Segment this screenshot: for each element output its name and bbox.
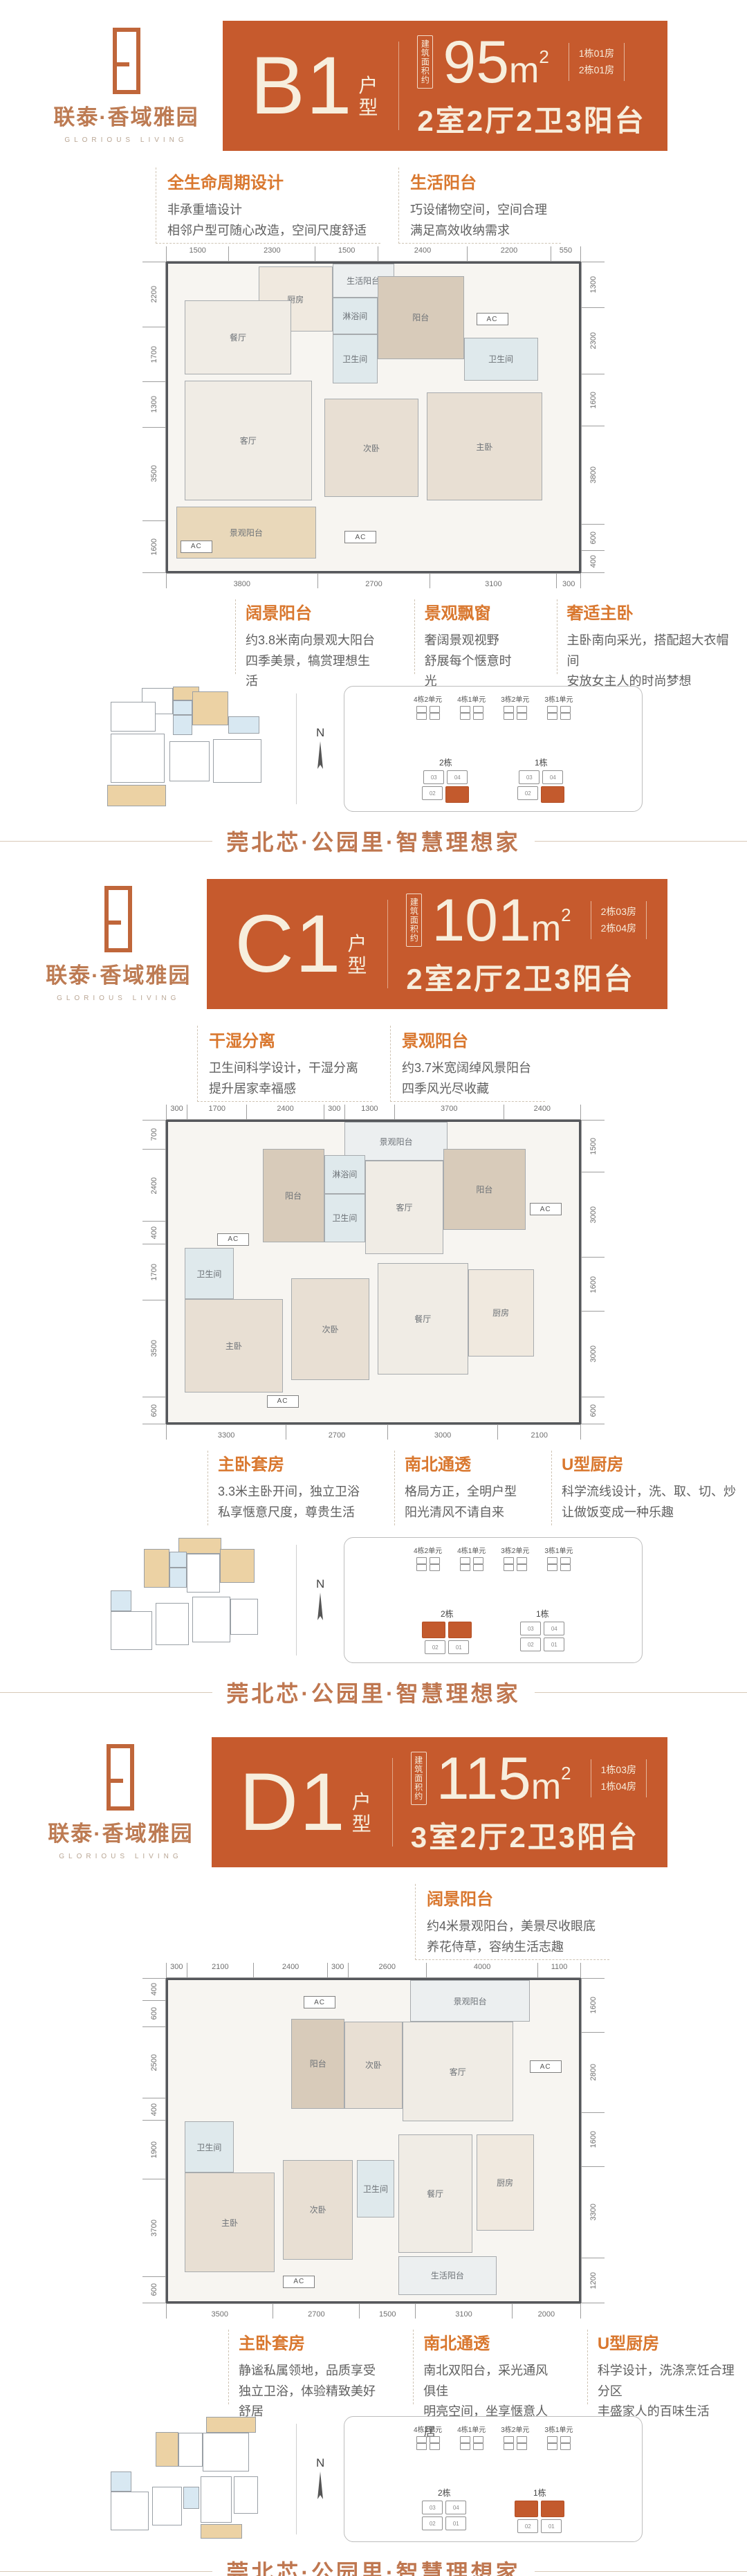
building-icon	[517, 1557, 527, 1564]
glyph-row	[547, 2443, 571, 2450]
layout-summary: 2室2厅2卫3阳台	[417, 98, 645, 140]
banner-divider	[392, 1758, 393, 1847]
annotation-title: 景观飘窗	[425, 599, 522, 624]
dimension-value: 2700	[329, 1431, 345, 1440]
brand-logo: 联泰·香域雅园 GLORIOUS LIVING	[38, 21, 214, 151]
room-卫生间: 卫生间	[464, 338, 538, 381]
building-icon	[504, 713, 514, 720]
building-icon	[504, 2436, 514, 2443]
building-icon	[416, 2443, 427, 2450]
mini-room	[220, 1549, 255, 1583]
building-icon	[430, 2436, 440, 2443]
feature-box: 景观阳台 约3.7米宽阔绰风景阳台 四季风光尽收藏	[390, 1026, 545, 1102]
ac-unit-badge: AC	[267, 1395, 299, 1408]
building-icon	[560, 1564, 571, 1571]
banner-divider	[387, 900, 388, 988]
room-客厅: 客厅	[403, 2022, 513, 2121]
dimension-value: 3100	[455, 2310, 472, 2319]
building-icon	[547, 2436, 557, 2443]
footer-line	[535, 841, 747, 842]
dimension-value: 1300	[150, 396, 158, 412]
room-label: 阳台	[310, 2058, 326, 2069]
building-icon	[460, 1557, 470, 1564]
dimension-value: 2300	[264, 246, 280, 255]
building-icon	[473, 2443, 483, 2450]
area-label: 建筑面积约	[417, 35, 433, 89]
room-label: 主卧	[225, 1340, 242, 1352]
compass-arrow-icon	[316, 1593, 324, 1623]
glyph-row: 0201	[422, 786, 469, 803]
unit-code-text: B1	[250, 47, 353, 125]
glyph-row	[547, 1557, 571, 1564]
section-b1: 联泰·香域雅园 GLORIOUS LIVING B1 户 型 建筑面积约 95m…	[0, 0, 747, 858]
feature-line: 相邻户型可随心改造，空间尺度舒适	[167, 221, 367, 242]
feature-line: 卫生间科学设计，干湿分离	[209, 1058, 358, 1079]
dimension-col-right: 1300230016003800600400	[581, 262, 605, 573]
dimension-left: 1700	[142, 327, 165, 381]
glyph-row	[416, 1564, 440, 1571]
unit-type-banner: D1 户 型 建筑面积约 115m2 1栋03房 1栋04房	[212, 1737, 667, 1867]
building-icon	[430, 1564, 440, 1571]
mini-room	[230, 1599, 258, 1635]
dimension-value: 2800	[589, 2064, 598, 2080]
cluster-glyphs	[547, 2436, 571, 2450]
compass-label: N	[316, 726, 324, 740]
annotation: 主卧套房 静谧私属领地，品质享受 独立卫浴，体验精致美好舒居	[228, 2330, 388, 2404]
vertical-divider	[296, 2424, 297, 2534]
floor-plan-canvas: 生活阳台厨房淋浴间阳台餐厅卫生间卫生间客厅次卧主卧景观阳台ACACAC	[166, 262, 581, 573]
building-cluster: 4栋1单元	[457, 2424, 486, 2450]
ac-unit-badge: AC	[217, 1233, 249, 1246]
room-label: 餐厅	[414, 1313, 431, 1325]
room-label: 卫生间	[488, 353, 513, 365]
glyph-row	[547, 1564, 571, 1571]
dimension-value: 2200	[150, 286, 158, 302]
building-unit-01: 01	[541, 2519, 562, 2533]
room-次卧: 次卧	[324, 399, 419, 497]
mini-floor-plan	[104, 687, 277, 811]
feature-row: 全生命周期设计 非承重墙设计 相邻户型可随心改造，空间尺度舒适 生活阳台 巧设储…	[156, 167, 747, 244]
dimension-value: 1600	[589, 392, 598, 408]
footer-line	[0, 1692, 212, 1693]
glyph-row	[504, 1557, 527, 1564]
dimension-value: 600	[150, 1404, 158, 1417]
glyph-row: 0201	[517, 786, 564, 803]
glyph-row	[416, 706, 440, 713]
building-icon	[517, 2436, 527, 2443]
dimension-row-top: 30021002400300260040001100	[166, 1963, 581, 1978]
room-厨房: 厨房	[477, 2134, 534, 2231]
dimension-value: 2400	[150, 1177, 158, 1194]
compass: N	[316, 2456, 324, 2502]
building-cluster: 3栋1单元	[544, 1545, 573, 1571]
room-阳台: 阳台	[443, 1149, 526, 1230]
cluster-glyphs	[460, 1557, 483, 1571]
feature-line: 养花侍草，容纳生活志趣	[427, 1937, 596, 1958]
mini-room	[173, 715, 192, 735]
mini-room	[173, 700, 192, 716]
cluster-label: 1栋	[533, 2487, 546, 2498]
dimension-value: 3500	[211, 2310, 228, 2319]
floor-plan: 30017002400300130037002400 7002400400170…	[0, 1105, 747, 1440]
dimension-top: 2400	[504, 1105, 580, 1120]
room-label: 餐厅	[427, 2188, 443, 2199]
cluster-glyphs	[547, 706, 571, 720]
building-icon	[517, 706, 527, 713]
room-卫生间: 卫生间	[324, 1194, 365, 1242]
dimension-top: 300	[166, 1105, 187, 1120]
cluster-label: 3栋2单元	[501, 2424, 529, 2434]
dimension-right: 1600	[582, 374, 605, 426]
building-cluster: 4栋2单元	[414, 2424, 442, 2450]
dimension-left: 2200	[142, 262, 165, 327]
glyph-row: 0304	[422, 1622, 472, 1638]
dimension-bottom: 1500	[359, 2303, 415, 2319]
cluster-glyphs	[547, 1557, 571, 1571]
annotation-line: 主卧南向采光，搭配超大衣帽间	[567, 631, 737, 671]
dimension-col-left: 700240040017003500600	[142, 1120, 166, 1424]
room-label: 阳台	[476, 1183, 492, 1195]
room-厨房: 厨房	[468, 1269, 534, 1357]
room-阳台: 阳台	[263, 1149, 324, 1242]
dimension-left: 400	[142, 1978, 165, 2000]
glyph-row	[504, 706, 527, 713]
building-icon	[517, 713, 527, 720]
building-icon	[460, 706, 470, 713]
suffix-char: 型	[358, 97, 378, 119]
section-footer: 莞北芯·公园里·智慧理想家	[0, 2555, 747, 2576]
unit-number: 1栋04房	[601, 1779, 636, 1795]
glyph-row	[460, 1557, 483, 1564]
ac-unit-badge: AC	[344, 531, 376, 543]
room-次卧: 次卧	[291, 1278, 369, 1381]
room-label: 景观阳台	[230, 527, 263, 538]
dimension-value: 1300	[589, 276, 598, 293]
building-unit-04: 04	[544, 1622, 564, 1635]
building-unit-02: 02	[422, 2516, 443, 2530]
dimension-col-left: 400600250040019003700600	[142, 1978, 166, 2303]
room-label: 客厅	[450, 2066, 466, 2078]
dimension-right: 3800	[582, 426, 605, 525]
brand-name-cn: 联泰·香域雅园	[46, 958, 191, 989]
room-label: 次卧	[310, 2204, 326, 2215]
bottom-strip: N 4栋2单元 4栋1单元 3栋2单元 3栋1单元 2栋030402011栋03…	[104, 682, 705, 815]
feature-box: 阔景阳台 约4米景观阳台，美景尽收眼底 养花侍草，容纳生活志趣	[415, 1884, 609, 1960]
annotation-line: 南北双阳台，采光通风俱佳	[423, 2361, 553, 2402]
dimension-value: 600	[589, 532, 598, 544]
mini-room	[192, 691, 229, 725]
site-bottom-clusters: 2栋030402011栋03040201	[356, 2487, 631, 2536]
building-cluster-2栋: 2栋03040201	[422, 1608, 472, 1654]
room-卫生间: 卫生间	[357, 2160, 394, 2218]
building-unit-01: 01	[544, 1638, 564, 1651]
dimension-value: 1200	[589, 2272, 598, 2289]
room-次卧: 次卧	[283, 2160, 353, 2260]
mini-room	[206, 2417, 257, 2433]
dimension-value: 3500	[150, 465, 158, 482]
dimension-left: 2500	[142, 2026, 165, 2098]
dimension-row-bottom: 35002700150031002000	[166, 2303, 581, 2319]
site-top-clusters: 4栋2单元 4栋1单元 3栋2单元 3栋1单元	[356, 693, 631, 720]
compass-arrow-icon	[316, 741, 324, 772]
room-label: 阳台	[412, 311, 429, 323]
dimension-right: 600	[582, 1397, 605, 1424]
room-label: 生活阳台	[347, 275, 380, 287]
glyph-row: 0304	[515, 2501, 564, 2517]
dimension-value: 2700	[308, 2310, 324, 2319]
glyph-row	[460, 1564, 483, 1571]
dimension-value: 2600	[379, 1963, 396, 1971]
dimension-row-top: 30017002400300130037002400	[166, 1105, 581, 1120]
glyph-row	[460, 2436, 483, 2443]
compass: N	[316, 1577, 324, 1623]
building-icon	[547, 1564, 557, 1571]
mini-room	[111, 702, 156, 732]
glyph-row	[504, 2436, 527, 2443]
dimension-left: 1900	[142, 2120, 165, 2179]
dimension-bottom: 2100	[497, 1424, 580, 1440]
brand-name-cn: 联泰·香域雅园	[48, 1816, 193, 1847]
annotation-line: 3.3米主卧开间，独立卫浴	[218, 1482, 360, 1503]
mini-room	[111, 734, 165, 782]
compass: N	[316, 726, 324, 772]
dimension-left: 3700	[142, 2179, 165, 2276]
building-unit-02: 02	[422, 786, 443, 800]
annotation-line: 约3.8米南向景观大阳台	[246, 631, 380, 651]
dimension-right: 1600	[582, 2112, 605, 2166]
glyph-row: 0304	[520, 1622, 564, 1635]
dimension-value: 1100	[551, 1963, 568, 1971]
building-cluster: 3栋2单元	[501, 1545, 529, 1571]
dimension-left: 600	[142, 2000, 165, 2026]
unit-numbers: 2栋03房 2栋04房	[591, 901, 647, 940]
building-icon	[547, 2443, 557, 2450]
annotation-title: 阔景阳台	[246, 599, 380, 624]
dimension-left: 700	[142, 1120, 165, 1149]
cluster-label: 3栋2单元	[501, 1545, 529, 1555]
building-cluster-1栋: 1栋03040201	[515, 2487, 564, 2533]
feature-row: 阔景阳台 约4米景观阳台，美景尽收眼底 养花侍草，容纳生活志趣	[415, 1884, 747, 1960]
annotation-line: 格局方正，全明户型	[405, 1482, 517, 1503]
mini-room	[111, 1611, 152, 1650]
unit-type-banner: B1 户 型 建筑面积约 95m2 1栋01房 2栋01房	[223, 21, 667, 151]
dimension-col-left: 22001700130035001600	[142, 262, 166, 573]
dimension-right: 2800	[582, 2032, 605, 2113]
building-unit-03: 03	[519, 770, 539, 784]
ac-unit-badge: AC	[530, 2060, 562, 2073]
poster-sheet: 联泰·香域雅园 GLORIOUS LIVING B1 户 型 建筑面积约 95m…	[0, 0, 747, 2576]
footer-slogan: 莞北芯·公园里·智慧理想家	[226, 1676, 520, 1708]
annotation: 南北通透 格局方正，全明户型 阳光清风不请自来	[394, 1451, 526, 1525]
glyph-row: 0304	[423, 770, 468, 784]
mini-room	[192, 1597, 230, 1643]
dimension-top: 1100	[537, 1963, 580, 1978]
cluster-label: 3栋2单元	[501, 693, 529, 704]
building-icon	[430, 1557, 440, 1564]
cluster-glyphs	[460, 2436, 483, 2450]
dimension-right: 1200	[582, 2258, 605, 2303]
section-d1: 联泰·香域雅园 GLORIOUS LIVING D1 户 型 建筑面积约 115…	[0, 1716, 747, 2576]
unit-numbers: 1栋03房 1栋04房	[591, 1759, 647, 1798]
annotation-row: 主卧套房 3.3米主卧开间，独立卫浴 私享惬意尺度，尊贵生活 南北通透 格局方正…	[207, 1451, 747, 1525]
dimension-top: 2300	[228, 246, 315, 262]
glyph-row	[416, 2436, 440, 2443]
feature-line: 四季风光尽收藏	[402, 1079, 531, 1100]
building-icon	[473, 706, 483, 713]
unit-number: 2栋01房	[579, 62, 614, 79]
building-cluster: 4栋2单元	[414, 693, 442, 720]
dimension-value: 600	[150, 2007, 158, 2020]
building-unit-02: 02	[520, 1638, 541, 1651]
dimension-value: 3800	[234, 580, 250, 588]
glyph-row: 0304	[519, 770, 563, 784]
annotation-title: 南北通透	[423, 2330, 553, 2354]
dimension-row-bottom: 3300270030002100	[166, 1424, 581, 1440]
dimension-top: 300	[327, 1963, 348, 1978]
unit-code-suffix: 户 型	[347, 933, 367, 977]
dimension-bottom: 2700	[317, 573, 430, 588]
mini-room	[144, 1549, 170, 1588]
annotation-row: 阔景阳台 约3.8米南向景观大阳台 四季美景，犒赏理想生活 景观飘窗 奢阔景观视…	[235, 599, 747, 674]
building-cluster-1栋: 1栋03040201	[520, 1608, 564, 1654]
dimension-bottom: 2700	[273, 2303, 359, 2319]
site-plan: 4栋2单元 4栋1单元 3栋2单元 3栋1单元 2栋030402011栋0304…	[344, 1537, 643, 1663]
building-unit-04: 04	[448, 1622, 472, 1638]
ac-unit-badge: AC	[181, 541, 212, 553]
dimension-value: 1600	[589, 2131, 598, 2148]
dimension-value: 2100	[531, 1431, 548, 1440]
feature-title: 阔景阳台	[427, 1885, 596, 1910]
mini-room	[203, 2433, 250, 2471]
glyph-row	[504, 1564, 527, 1571]
building-unit-03: 03	[422, 2501, 443, 2514]
room-次卧: 次卧	[344, 2022, 402, 2108]
mini-room	[111, 2471, 131, 2492]
glyph-row	[416, 1557, 440, 1564]
building-unit-03: 03	[423, 770, 444, 784]
feature-title: 景观阳台	[402, 1027, 531, 1051]
dimension-value: 1700	[209, 1105, 225, 1113]
dimension-bottom: 300	[556, 573, 580, 588]
cluster-glyphs	[416, 2436, 440, 2450]
building-unit-02: 02	[425, 1640, 445, 1654]
dimension-value: 700	[150, 1128, 158, 1141]
building-icon	[504, 706, 514, 713]
layout-summary: 3室2厅2卫3阳台	[411, 1814, 647, 1856]
dimension-right: 2300	[582, 307, 605, 374]
unit-code: B1 户 型	[250, 47, 378, 125]
room-label: 餐厅	[230, 332, 246, 343]
room-淋浴间: 淋浴间	[324, 1155, 365, 1194]
dimension-value: 3700	[441, 1105, 457, 1113]
footer-slogan: 莞北芯·公园里·智慧理想家	[226, 825, 520, 857]
dimension-bottom: 3300	[166, 1424, 286, 1440]
dimension-value: 1500	[189, 246, 205, 255]
room-生活阳台: 生活阳台	[398, 2256, 497, 2295]
annotation: 奢适主卧 主卧南向采光，搭配超大衣帽间 安放女主人的时尚梦想	[557, 599, 747, 674]
mini-room	[213, 739, 261, 783]
compass-label: N	[316, 2456, 324, 2470]
site-top-clusters: 4栋2单元 4栋1单元 3栋2单元 3栋1单元	[356, 1545, 631, 1571]
suffix-char: 户	[358, 75, 378, 97]
mini-room	[178, 2433, 203, 2467]
dimension-row-bottom: 380027003100300	[166, 573, 581, 588]
room-主卧: 主卧	[185, 2173, 275, 2272]
cluster-label: 3栋1单元	[544, 693, 573, 704]
dimension-left: 1700	[142, 1244, 165, 1300]
dimension-value: 400	[150, 1983, 158, 1995]
room-label: 厨房	[492, 1307, 509, 1318]
building-unit-04: 04	[542, 770, 563, 784]
cluster-glyphs	[504, 706, 527, 720]
dimension-value: 2400	[534, 1105, 551, 1113]
building-icon	[504, 1557, 514, 1564]
building-cluster: 3栋2单元	[501, 2424, 529, 2450]
mini-room	[107, 785, 166, 806]
annotation-title: U型厨房	[562, 1451, 736, 1475]
dimension-top: 2600	[348, 1963, 427, 1978]
mini-floor-plan	[104, 1538, 277, 1662]
footer-line	[0, 841, 212, 842]
room-卫生间: 卫生间	[185, 1248, 234, 1299]
dimension-top: 1500	[315, 246, 377, 262]
room-客厅: 客厅	[365, 1161, 443, 1254]
dimension-right: 3300	[582, 2166, 605, 2258]
cluster-label: 4栋1单元	[457, 1545, 486, 1555]
annotation-line: 静谧私属领地，品质享受	[239, 2361, 378, 2382]
dimension-value: 400	[589, 555, 598, 568]
building-unit-01: 01	[445, 786, 469, 803]
suffix-char: 户	[347, 933, 367, 955]
building-icon	[560, 706, 571, 713]
room-主卧: 主卧	[185, 1299, 284, 1393]
building-unit-01: 01	[541, 786, 564, 803]
annotation-title: U型厨房	[598, 2330, 737, 2354]
floor-plan: 15002300150024002200550 2200170013003500…	[0, 246, 747, 588]
dimension-left: 3500	[142, 427, 165, 520]
building-icon	[416, 1557, 427, 1564]
cluster-label: 2栋	[438, 2487, 451, 2498]
banner-details: 建筑面积约 95m2 1栋01房 2栋01房 2室2厅2卫3阳台	[417, 33, 645, 140]
ac-unit-badge: AC	[477, 313, 508, 325]
area-value: 101m2	[432, 891, 571, 950]
footer-line	[535, 1692, 747, 1693]
annotation-line: 奢阔景观视野	[425, 631, 522, 651]
building-icon	[473, 1564, 483, 1571]
building-unit-03: 03	[422, 1622, 445, 1638]
annotation-line: 科学设计，洗涤烹饪合理分区	[598, 2361, 737, 2402]
brand-logo-icon	[104, 886, 132, 952]
dimension-right: 3000	[582, 1172, 605, 1258]
room-label: 厨房	[497, 2177, 513, 2188]
building-icon	[416, 1564, 427, 1571]
feature-line: 提升居家幸福感	[209, 1079, 358, 1100]
unit-code: D1 户 型	[239, 1763, 371, 1841]
section-c1: 联泰·香域雅园 GLORIOUS LIVING C1 户 型 建筑面积约 101…	[0, 858, 747, 1716]
compass-label: N	[316, 1577, 324, 1591]
building-cluster: 3栋2单元	[501, 693, 529, 720]
dimension-bottom: 3800	[166, 573, 317, 588]
annotation-line: 阳光清风不请自来	[405, 1503, 517, 1523]
dimension-value: 2700	[365, 580, 382, 588]
area-label: 建筑面积约	[411, 1752, 427, 1805]
building-icon	[547, 706, 557, 713]
glyph-row	[460, 713, 483, 720]
unit-number: 1栋03房	[601, 1762, 636, 1779]
floor-plan-canvas: 景观阳台客厅阳台次卧卫生间主卧次卧卫生间餐厅厨房生活阳台ACACAC	[166, 1978, 581, 2303]
dimension-top: 2100	[187, 1963, 254, 1978]
building-icon	[547, 713, 557, 720]
